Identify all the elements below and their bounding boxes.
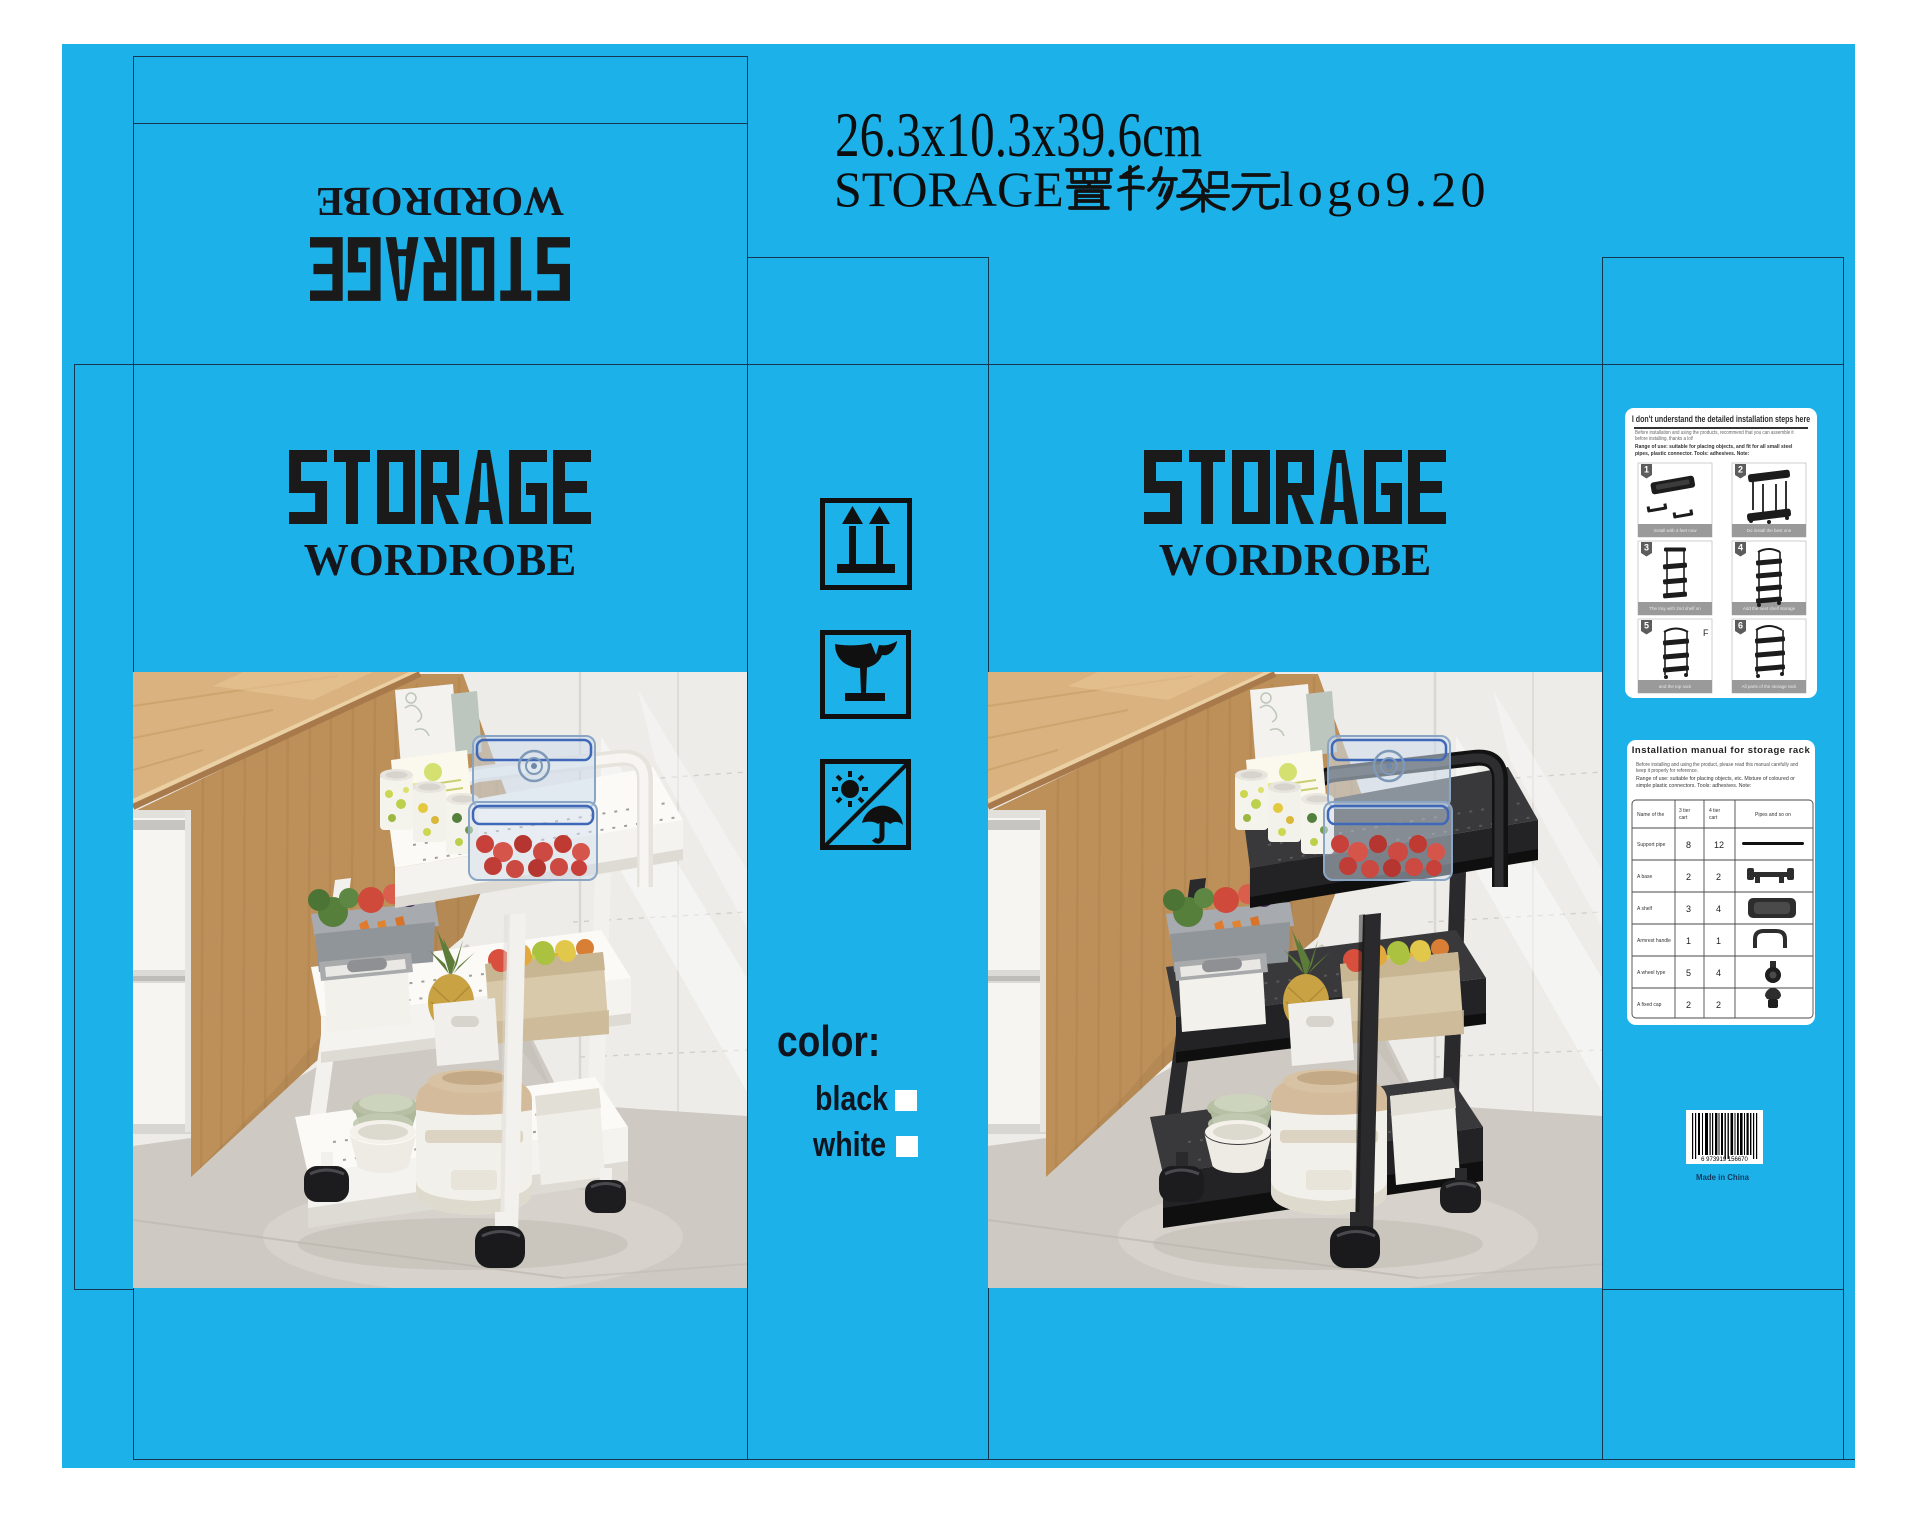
svg-text:2: 2: [1716, 872, 1721, 882]
svg-text:1: 1: [1716, 936, 1721, 946]
svg-text:Add the next shelf storage: Add the next shelf storage: [1743, 606, 1796, 611]
svg-text:3: 3: [1644, 543, 1649, 553]
svg-text:5: 5: [1644, 621, 1649, 631]
svg-text:A shelf: A shelf: [1637, 906, 1653, 912]
svg-text:Do install the best one: Do install the best one: [1747, 528, 1792, 533]
svg-text:6: 6: [1738, 621, 1743, 631]
svg-text:2: 2: [1738, 465, 1743, 475]
svg-text:8: 8: [1686, 840, 1691, 850]
svg-text:Name of the: Name of the: [1637, 812, 1664, 818]
svg-text:2: 2: [1716, 1000, 1721, 1010]
svg-text:A wheel type: A wheel type: [1637, 970, 1666, 976]
svg-text:Install with 4 feet now: Install with 4 feet now: [1653, 528, 1697, 533]
svg-text:cart: cart: [1679, 815, 1688, 821]
svg-text:A fixed cap: A fixed cap: [1637, 1002, 1662, 1008]
svg-text:Support pipe: Support pipe: [1637, 842, 1666, 848]
svg-text:12: 12: [1714, 840, 1724, 850]
svg-text:1: 1: [1644, 465, 1649, 475]
svg-text:6 973919 156670: 6 973919 156670: [1701, 1157, 1748, 1163]
svg-text:4: 4: [1716, 968, 1721, 978]
svg-text:All parts of the storage rack: All parts of the storage rack: [1742, 684, 1798, 689]
svg-text:4 tier: 4 tier: [1709, 808, 1720, 814]
svg-text:A base: A base: [1637, 874, 1653, 880]
svg-text:cart: cart: [1709, 815, 1718, 821]
svg-text:5: 5: [1686, 968, 1691, 978]
svg-text:3 tier: 3 tier: [1679, 808, 1690, 814]
svg-text:4: 4: [1738, 543, 1743, 553]
svg-text:F: F: [1703, 628, 1709, 638]
svg-text:The tray with 2nd shelf on: The tray with 2nd shelf on: [1649, 606, 1701, 611]
svg-text:Pipes and so on: Pipes and so on: [1755, 812, 1791, 818]
svg-text:2: 2: [1686, 872, 1691, 882]
svg-text:4: 4: [1716, 904, 1721, 914]
svg-text:and the top rack: and the top rack: [1659, 684, 1692, 689]
svg-text:Armrest handle: Armrest handle: [1637, 938, 1671, 944]
svg-text:2: 2: [1686, 1000, 1691, 1010]
svg-text:1: 1: [1686, 936, 1691, 946]
svg-text:3: 3: [1686, 904, 1691, 914]
